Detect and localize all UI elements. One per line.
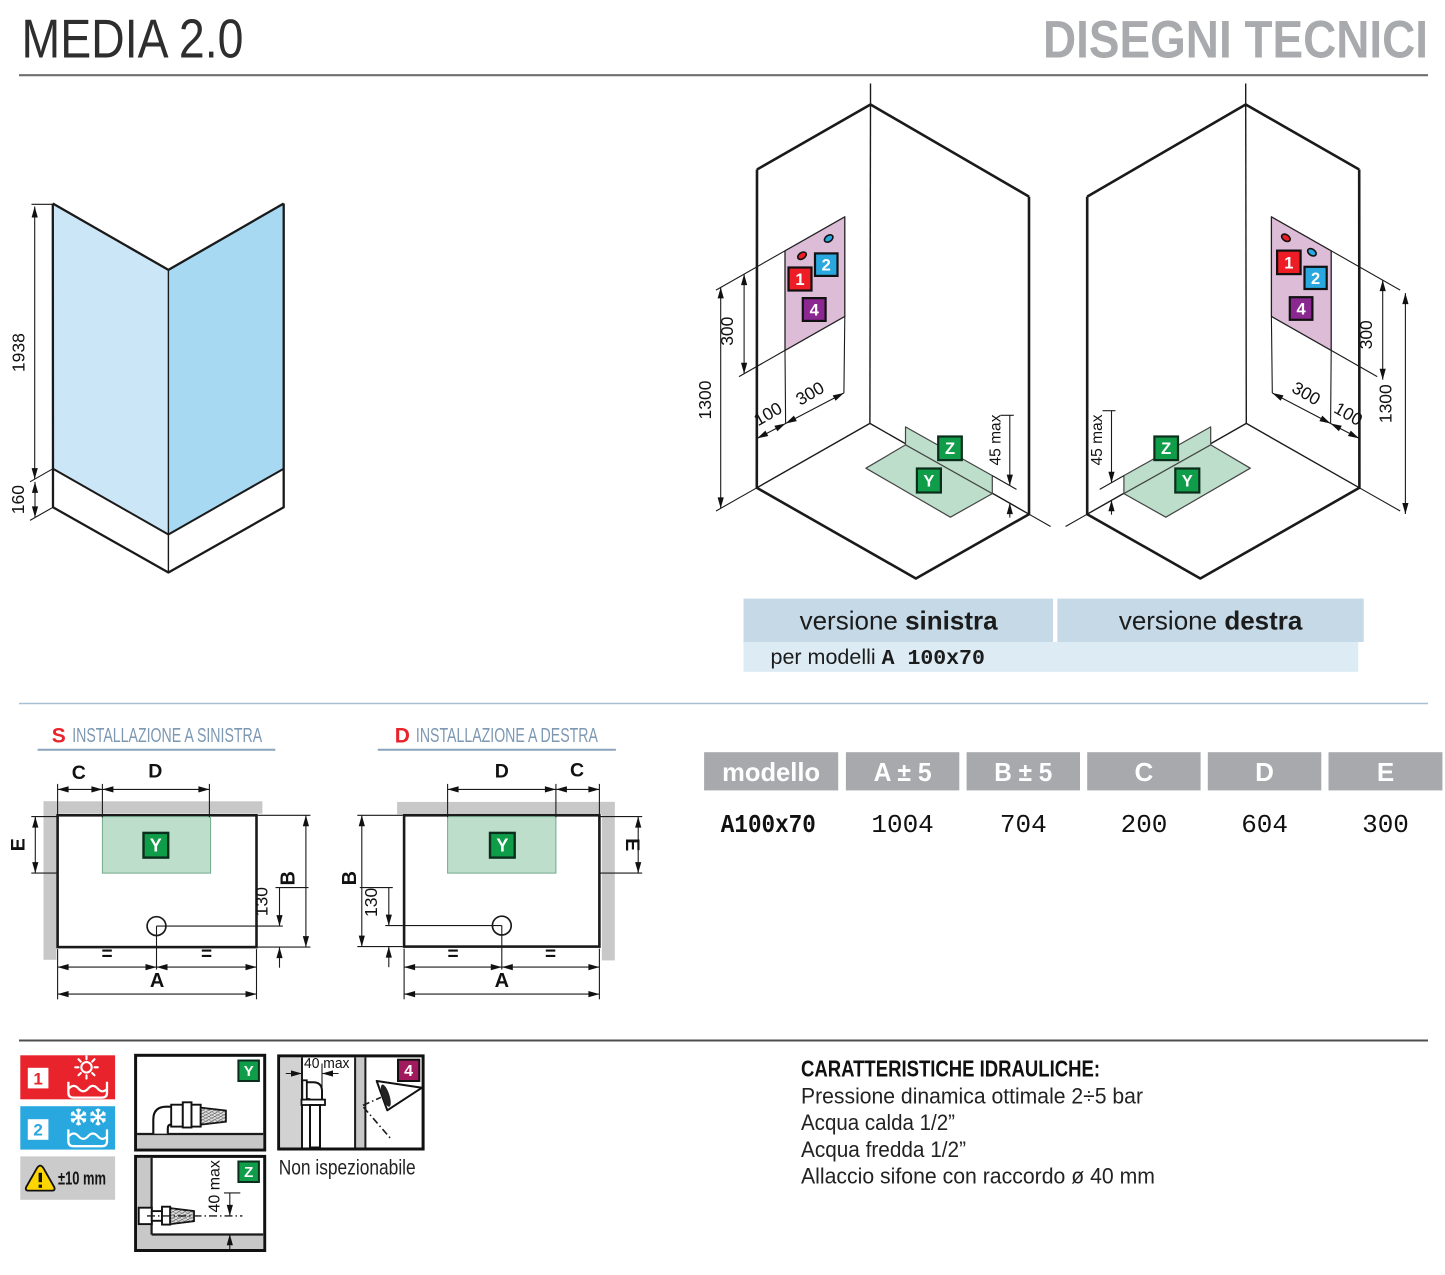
svg-text:D: D [148,761,162,783]
svg-text:Acqua fredda 1/2”: Acqua fredda 1/2” [801,1137,966,1162]
svg-text:A: A [150,970,164,992]
svg-text:1300: 1300 [1376,384,1396,423]
svg-text:Acqua calda 1/2”: Acqua calda 1/2” [801,1110,955,1135]
svg-text:INSTALLAZIONE A SINISTRA: INSTALLAZIONE A SINISTRA [72,725,262,747]
svg-text:DISEGNI TECNICI: DISEGNI TECNICI [1043,11,1428,70]
svg-text:Allaccio sifone con raccordo ø: Allaccio sifone con raccordo ø 40 mm [801,1164,1155,1189]
svg-text:B: B [339,871,361,885]
svg-text:1: 1 [1284,254,1293,272]
svg-text:160: 160 [8,485,28,514]
svg-text:Z: Z [945,440,955,458]
svg-text:4: 4 [404,1063,413,1080]
svg-text:Y: Y [150,836,162,856]
svg-text:B: B [277,871,299,885]
svg-text:C: C [570,760,584,782]
svg-text:1: 1 [795,271,804,289]
svg-text:modello: modello [722,757,820,787]
svg-text:4: 4 [810,301,820,319]
svg-text:per modelli A 100x70: per modelli A 100x70 [771,645,985,671]
svg-text:Y: Y [923,472,934,490]
svg-text:300: 300 [717,316,737,345]
svg-text:Y: Y [496,836,508,856]
svg-text:4: 4 [1297,300,1307,318]
svg-text:E: E [621,838,643,851]
svg-text:Y: Y [1182,472,1193,490]
svg-text:versione destra: versione destra [1119,606,1303,636]
svg-text:E: E [1377,757,1394,787]
svg-text:=: = [201,944,212,965]
svg-text:C: C [72,762,86,784]
svg-text:=: = [545,944,556,965]
svg-text:Z: Z [1161,440,1171,458]
svg-text:45 max: 45 max [987,414,1004,465]
svg-text:B ± 5: B ± 5 [994,757,1052,787]
svg-text:A ± 5: A ± 5 [874,757,932,787]
svg-text:40 max: 40 max [207,1160,224,1212]
svg-text:versione sinistra: versione sinistra [800,606,999,636]
svg-text:604: 604 [1241,810,1288,840]
svg-text:704: 704 [1000,810,1047,840]
svg-text:A: A [495,970,509,992]
svg-text:Y: Y [244,1063,254,1080]
svg-text:D: D [1255,757,1274,787]
svg-text:INSTALLAZIONE A DESTRA: INSTALLAZIONE A DESTRA [416,725,598,747]
svg-text:130: 130 [252,887,272,916]
svg-text:1004: 1004 [871,810,933,840]
svg-text:1300: 1300 [695,380,715,419]
svg-text:300: 300 [1362,810,1409,840]
svg-text:2: 2 [1311,270,1320,288]
svg-text:40 max: 40 max [304,1056,350,1072]
svg-text:2: 2 [822,257,831,275]
svg-text:130: 130 [361,888,381,917]
svg-text:D: D [395,724,410,747]
svg-text:±10 mm: ±10 mm [58,1169,106,1189]
svg-text:Pressione dinamica ottimale 2÷: Pressione dinamica ottimale 2÷5 bar [801,1083,1143,1108]
svg-text:200: 200 [1121,810,1168,840]
svg-text:Non ispezionabile: Non ispezionabile [279,1157,416,1180]
svg-text:300: 300 [1356,320,1376,349]
svg-text:=: = [447,944,458,965]
svg-text:MEDIA 2.0: MEDIA 2.0 [22,8,244,70]
svg-text:E: E [8,838,30,851]
svg-text:1: 1 [33,1069,42,1088]
svg-text:CARATTERISTICHE IDRAULICHE:: CARATTERISTICHE IDRAULICHE: [801,1055,1100,1081]
svg-text:=: = [101,944,112,965]
svg-text:Z: Z [244,1164,253,1181]
svg-text:2: 2 [33,1121,42,1140]
svg-text:A100x70: A100x70 [721,810,816,840]
svg-text:S: S [52,724,66,747]
svg-text:D: D [495,761,509,783]
svg-text:45 max: 45 max [1089,414,1106,465]
svg-text:C: C [1135,757,1154,787]
svg-text:1938: 1938 [8,333,28,372]
